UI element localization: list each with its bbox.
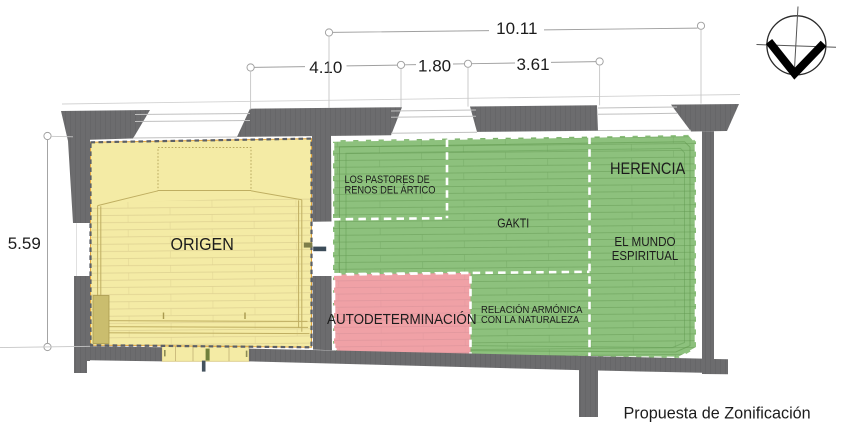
svg-text:AUTODETERMINACIÓN: AUTODETERMINACIÓN <box>327 311 477 328</box>
svg-text:10.11: 10.11 <box>496 19 537 38</box>
svg-text:5.59: 5.59 <box>8 234 41 253</box>
svg-text:4.10: 4.10 <box>309 58 342 77</box>
svg-text:EL MUNDO: EL MUNDO <box>614 234 675 249</box>
svg-text:RENOS DEL ÁRTICO: RENOS DEL ÁRTICO <box>345 184 436 197</box>
svg-text:HERENCIA: HERENCIA <box>610 160 685 178</box>
svg-text:3.61: 3.61 <box>516 55 549 74</box>
svg-text:CON LA NATURALEZA: CON LA NATURALEZA <box>481 315 580 326</box>
svg-text:1.80: 1.80 <box>418 57 451 76</box>
svg-text:GAKTI: GAKTI <box>497 217 529 231</box>
svg-text:ESPIRITUAL: ESPIRITUAL <box>612 248 678 263</box>
svg-text:ORIGEN: ORIGEN <box>171 234 234 254</box>
svg-text:Propuesta de Zonificación: Propuesta de Zonificación <box>624 405 811 423</box>
